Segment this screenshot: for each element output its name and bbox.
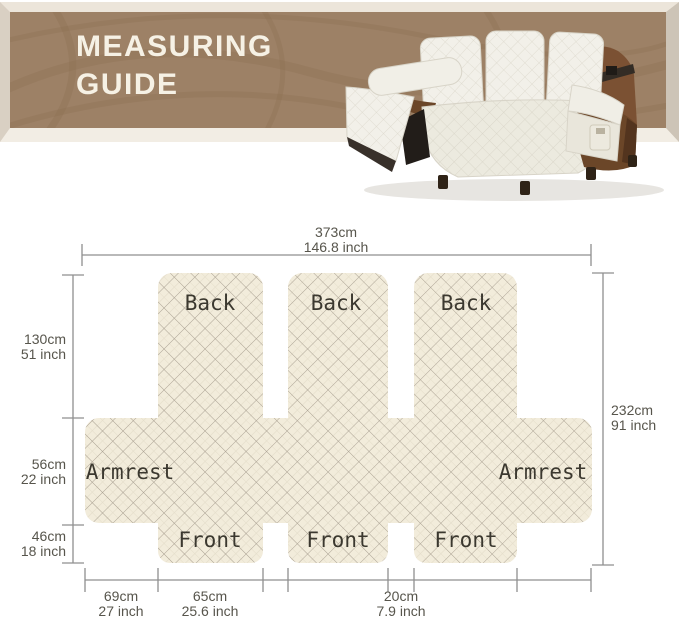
front-panel-2-label: Front: [306, 528, 369, 552]
dim-seat-width-cm: 65cm: [182, 589, 239, 604]
dim-seat-width: 65cm 25.6 inch: [182, 589, 239, 619]
dim-total-width: 373cm 146.8 inch: [304, 225, 369, 255]
front-panel-1-label: Front: [178, 528, 241, 552]
back-panel-3-label: Back: [441, 291, 492, 315]
dim-armrest-width-inch: 27 inch: [98, 604, 143, 619]
dim-front-height-cm: 46cm: [21, 529, 66, 544]
back-panel-2-label: Back: [311, 291, 362, 315]
front-panel-3-label: Front: [434, 528, 497, 552]
dim-armrest-width-cm: 69cm: [98, 589, 143, 604]
dim-total-height: 232cm 91 inch: [611, 403, 656, 433]
dim-front-height: 46cm 18 inch: [21, 529, 66, 559]
dim-armrest-width: 69cm 27 inch: [98, 589, 143, 619]
armrest-right-label: Armrest: [499, 460, 588, 484]
dim-total-width-inch: 146.8 inch: [304, 240, 369, 255]
back-panel-1-label: Back: [185, 291, 236, 315]
dim-total-width-cm: 373cm: [304, 225, 369, 240]
dim-total-height-cm: 232cm: [611, 403, 656, 418]
dim-back-height-cm: 130cm: [21, 332, 66, 347]
dim-gap-width: 20cm 7.9 inch: [376, 589, 425, 619]
dim-seat-depth-inch: 22 inch: [21, 472, 66, 487]
dim-seat-width-inch: 25.6 inch: [182, 604, 239, 619]
dim-gap-width-inch: 7.9 inch: [376, 604, 425, 619]
measuring-guide-image: MEASURING GUIDE: [0, 0, 679, 623]
dim-back-height: 130cm 51 inch: [21, 332, 66, 362]
dim-total-height-inch: 91 inch: [611, 418, 656, 433]
dim-seat-depth-cm: 56cm: [21, 457, 66, 472]
dim-gap-width-cm: 20cm: [376, 589, 425, 604]
armrest-left-label: Armrest: [86, 460, 175, 484]
dim-seat-depth: 56cm 22 inch: [21, 457, 66, 487]
dim-front-height-inch: 18 inch: [21, 544, 66, 559]
dim-back-height-inch: 51 inch: [21, 347, 66, 362]
